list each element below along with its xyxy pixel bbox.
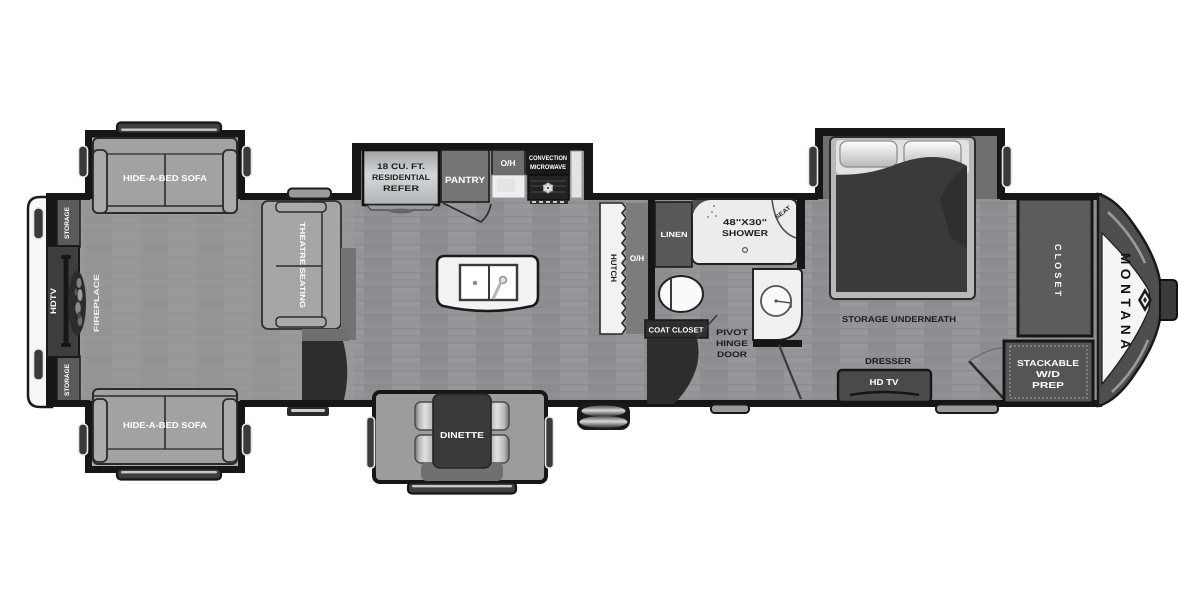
svg-text:DINETTE: DINETTE xyxy=(440,430,484,440)
svg-text:PREP: PREP xyxy=(1032,380,1064,390)
svg-text:O/H: O/H xyxy=(630,254,644,263)
svg-text:STACKABLE: STACKABLE xyxy=(1017,358,1079,368)
svg-text:SHOWER: SHOWER xyxy=(722,228,768,238)
svg-text:MICROWAVE: MICROWAVE xyxy=(530,164,567,171)
svg-text:THEATRE SEATING: THEATRE SEATING xyxy=(298,222,307,308)
svg-text:HUTCH: HUTCH xyxy=(609,254,618,282)
svg-text:COAT CLOSET: COAT CLOSET xyxy=(649,326,704,335)
svg-text:LINEN: LINEN xyxy=(661,230,688,239)
svg-text:DOOR: DOOR xyxy=(717,350,747,359)
svg-text:HDTV: HDTV xyxy=(49,287,58,314)
svg-text:48"X30": 48"X30" xyxy=(723,217,767,227)
svg-text:HIDE-A-BED SOFA: HIDE-A-BED SOFA xyxy=(123,173,207,183)
svg-text:STORAGE: STORAGE xyxy=(64,206,71,239)
svg-text:HINGE: HINGE xyxy=(716,339,749,348)
svg-text:RESIDENTIAL: RESIDENTIAL xyxy=(372,173,430,182)
svg-text:O/H: O/H xyxy=(500,158,515,168)
svg-text:CONVECTION: CONVECTION xyxy=(529,155,567,162)
svg-text:PIVOT: PIVOT xyxy=(716,328,748,337)
svg-text:18 CU. FT.: 18 CU. FT. xyxy=(377,162,425,171)
svg-text:PANTRY: PANTRY xyxy=(445,175,485,185)
svg-text:HD TV: HD TV xyxy=(870,377,899,387)
svg-text:REFER: REFER xyxy=(383,184,419,193)
svg-text:STORAGE: STORAGE xyxy=(64,363,71,396)
svg-text:DRESSER: DRESSER xyxy=(865,356,911,366)
svg-text:HIDE-A-BED SOFA: HIDE-A-BED SOFA xyxy=(123,420,207,430)
svg-text:FIREPLACE: FIREPLACE xyxy=(92,274,101,332)
svg-text:W/D: W/D xyxy=(1036,369,1060,379)
svg-text:STORAGE UNDERNEATH: STORAGE UNDERNEATH xyxy=(842,314,956,324)
